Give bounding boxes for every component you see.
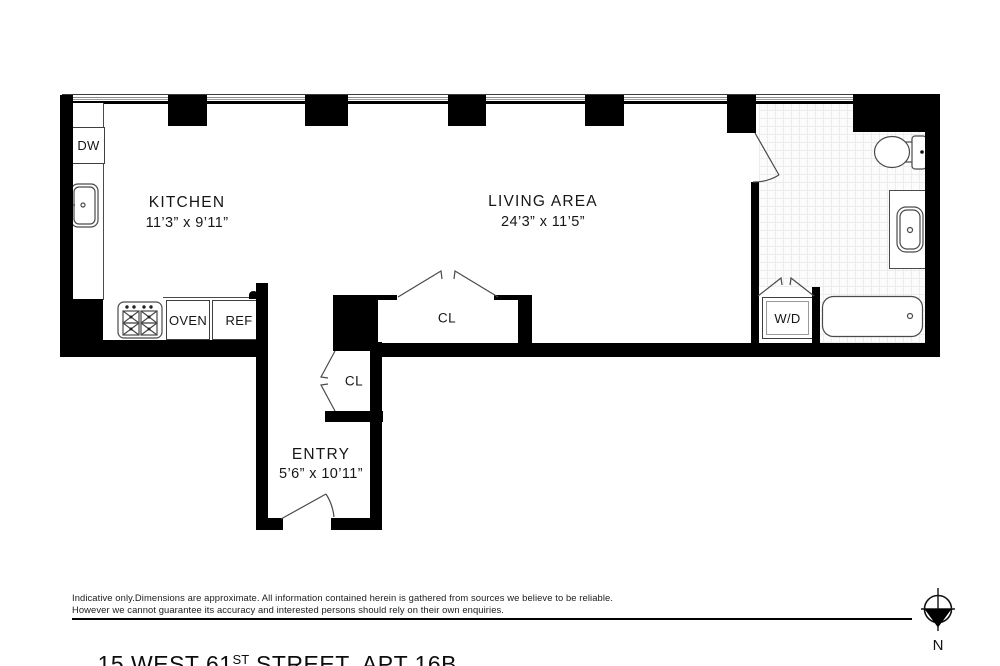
room-label-living-area: LIVING AREA (488, 193, 598, 211)
wall-pier (585, 95, 624, 126)
address-title: 15 WEST 61ST STREET APT 16B (70, 624, 457, 666)
wall-entry-right (370, 342, 382, 530)
address-ordinal: ST (233, 652, 250, 666)
room-dims-living-area: 24’3” x 11’5” (501, 214, 585, 230)
oven-label: OVEN (169, 313, 207, 328)
swing-door-icon (278, 488, 340, 522)
toilet-icon (872, 132, 928, 174)
wall-bathroom-partition (751, 182, 759, 343)
wall-living-closet-right (518, 295, 532, 344)
room-dims-kitchen: 11’3” x 9’11” (146, 215, 229, 231)
swing-door-icon (750, 131, 786, 187)
wall-pier (448, 95, 486, 126)
north-label: N (933, 637, 944, 654)
wall-kitchen-bottom (60, 340, 268, 357)
wall-corner-block (60, 299, 103, 346)
wall-pier (305, 95, 348, 126)
compass-icon: N (912, 584, 964, 656)
wall-pier (727, 95, 756, 133)
bathroom-sink-icon (895, 205, 925, 254)
room-label-entry: ENTRY (292, 446, 350, 464)
bifold-door-icon (756, 274, 816, 298)
address-rest: STREET APT 16B (249, 651, 457, 666)
footer-divider (72, 618, 912, 620)
oven: OVEN (166, 300, 210, 340)
refrigerator-label: REF (226, 313, 253, 328)
bifold-door-icon (317, 349, 337, 413)
stove-icon (116, 300, 164, 340)
wall-right (925, 95, 940, 357)
disclaimer-line-2: However we cannot guarantee its accuracy… (72, 604, 772, 616)
closet-label-living: CL (438, 311, 456, 326)
bathtub-icon (821, 295, 924, 338)
closet-label-entry: CL (345, 374, 363, 389)
floor-plan-page: DW OVEN REF W/D (0, 0, 1000, 666)
wall-main-bottom (377, 343, 940, 357)
room-label-kitchen: KITCHEN (149, 194, 225, 212)
bifold-door-icon (396, 267, 500, 299)
wall-entry-left (256, 283, 268, 530)
wall-living-closet-lip-left (378, 295, 397, 300)
room-dims-entry: 5’6” x 10’11” (279, 466, 363, 482)
dishwasher: DW (73, 127, 105, 164)
dishwasher-label: DW (77, 138, 99, 153)
washer-dryer-label: W/D (774, 311, 800, 326)
kitchen-sink-icon (68, 181, 102, 231)
wall-pier (168, 95, 207, 126)
disclaimer-line-1: Indicative only.Dimensions are approxima… (72, 592, 772, 604)
disclaimer-text: Indicative only.Dimensions are approxima… (72, 592, 772, 615)
address-number-street: 15 WEST 61 (98, 651, 233, 666)
washer-dryer: W/D (762, 297, 813, 339)
